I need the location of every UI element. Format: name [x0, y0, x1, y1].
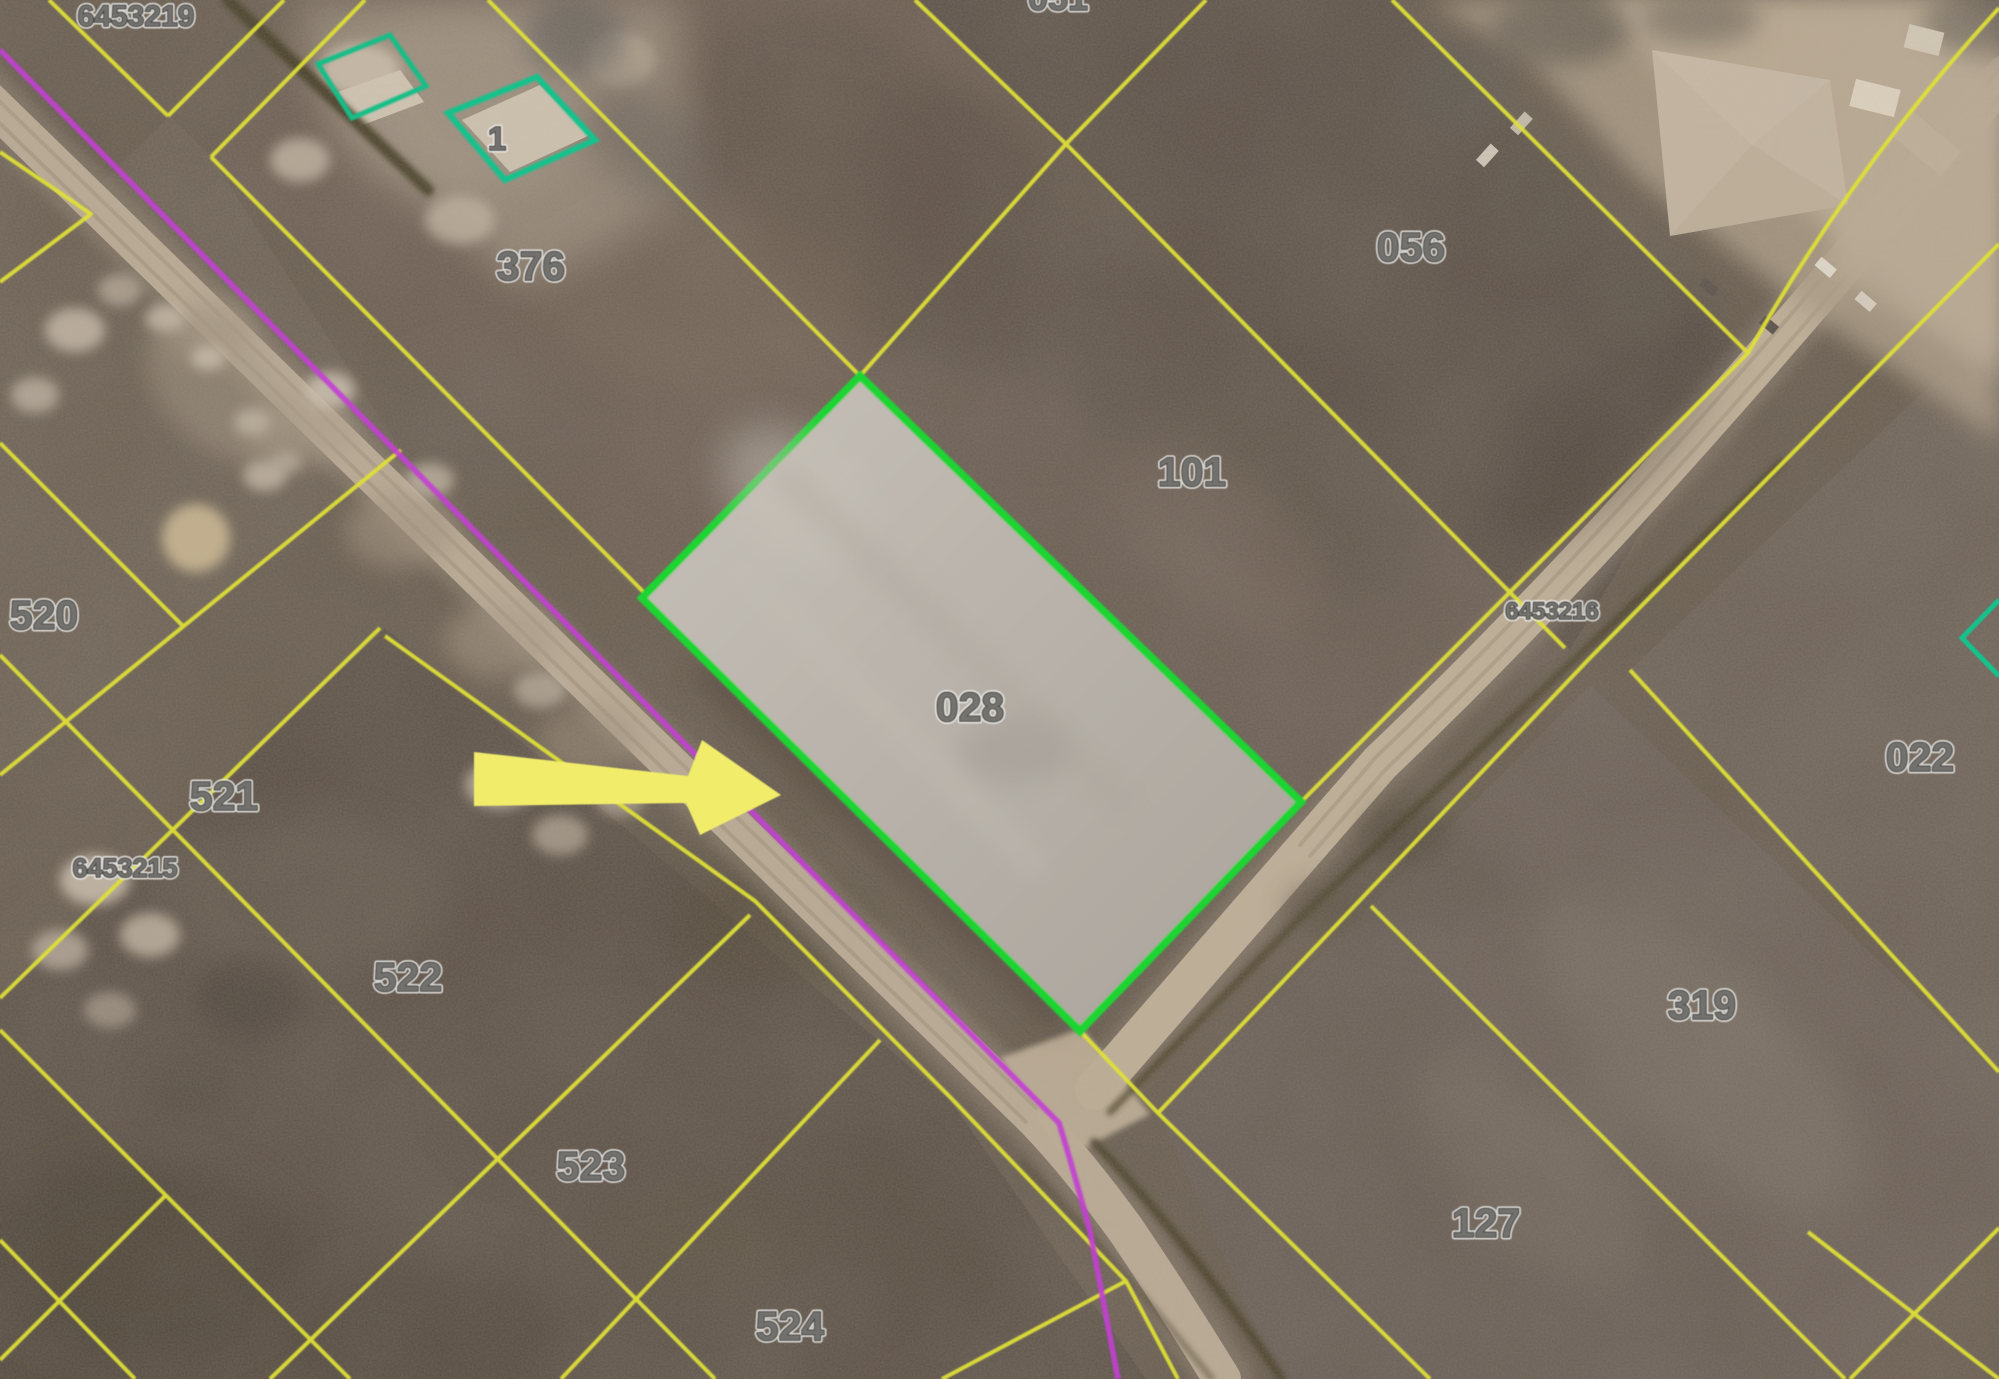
svg-text:051: 051 [1028, 0, 1088, 18]
svg-text:520: 520 [10, 592, 78, 638]
svg-text:022: 022 [1886, 734, 1954, 780]
svg-text:319: 319 [1668, 982, 1736, 1028]
svg-text:101: 101 [1158, 449, 1226, 495]
svg-text:127: 127 [1452, 1200, 1520, 1246]
svg-text:522: 522 [374, 954, 442, 1000]
svg-text:523: 523 [557, 1143, 625, 1189]
svg-text:524: 524 [756, 1303, 825, 1349]
svg-text:376: 376 [497, 243, 565, 289]
svg-text:1: 1 [488, 120, 506, 157]
svg-text:521: 521 [190, 773, 258, 819]
svg-text:6453215: 6453215 [72, 853, 177, 883]
svg-text:028: 028 [936, 684, 1004, 730]
svg-text:6453219: 6453219 [78, 0, 195, 33]
svg-text:6453216: 6453216 [1505, 598, 1598, 625]
svg-text:056: 056 [1377, 224, 1445, 270]
